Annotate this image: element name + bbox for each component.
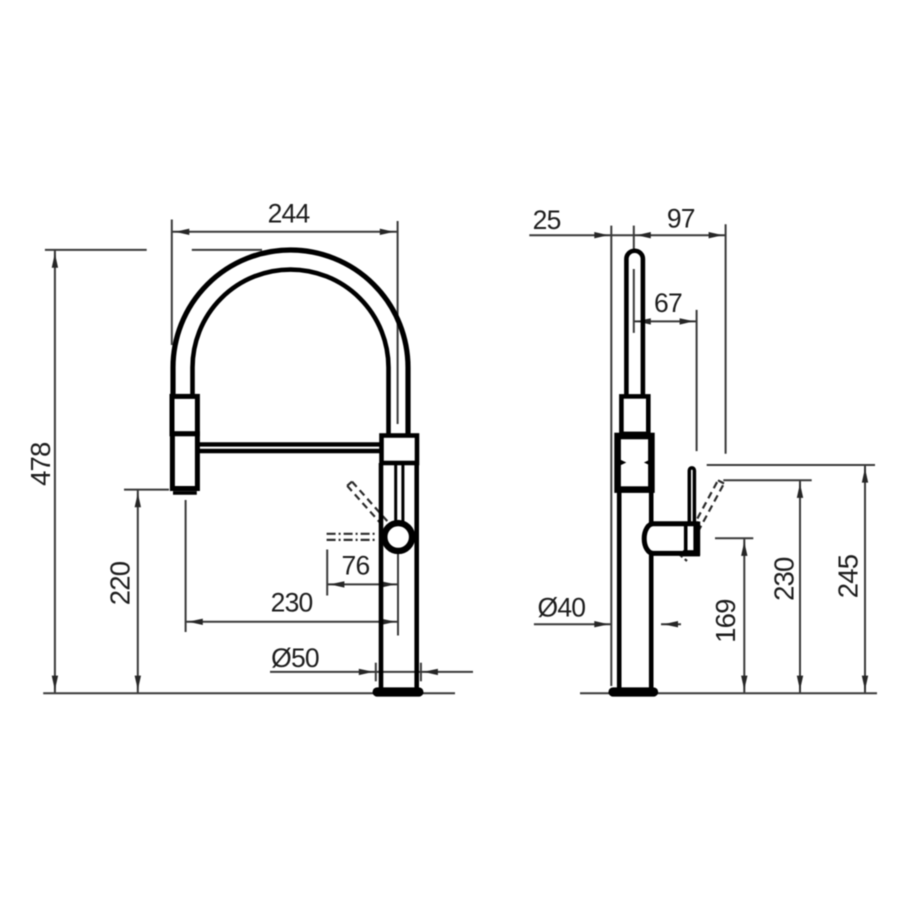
svg-text:220: 220 xyxy=(104,561,135,605)
svg-text:76: 76 xyxy=(342,551,370,581)
svg-text:67: 67 xyxy=(654,288,682,318)
svg-text:25: 25 xyxy=(533,205,561,235)
svg-text:169: 169 xyxy=(710,599,741,642)
svg-text:245: 245 xyxy=(833,554,864,598)
svg-text:Ø40: Ø40 xyxy=(538,593,586,623)
svg-text:478: 478 xyxy=(25,442,56,486)
svg-text:230: 230 xyxy=(768,557,799,601)
svg-text:97: 97 xyxy=(667,204,695,234)
svg-text:Ø50: Ø50 xyxy=(271,643,319,673)
svg-text:244: 244 xyxy=(268,199,310,229)
svg-text:230: 230 xyxy=(271,588,313,618)
